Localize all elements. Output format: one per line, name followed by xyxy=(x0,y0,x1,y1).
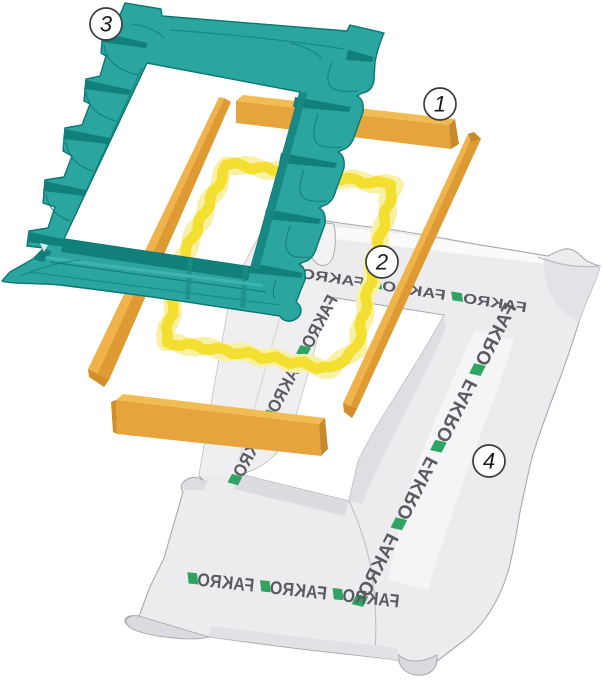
svg-text:2: 2 xyxy=(375,250,388,275)
svg-text:1: 1 xyxy=(434,92,446,117)
svg-text:4: 4 xyxy=(483,449,495,474)
svg-text:3: 3 xyxy=(100,12,113,37)
